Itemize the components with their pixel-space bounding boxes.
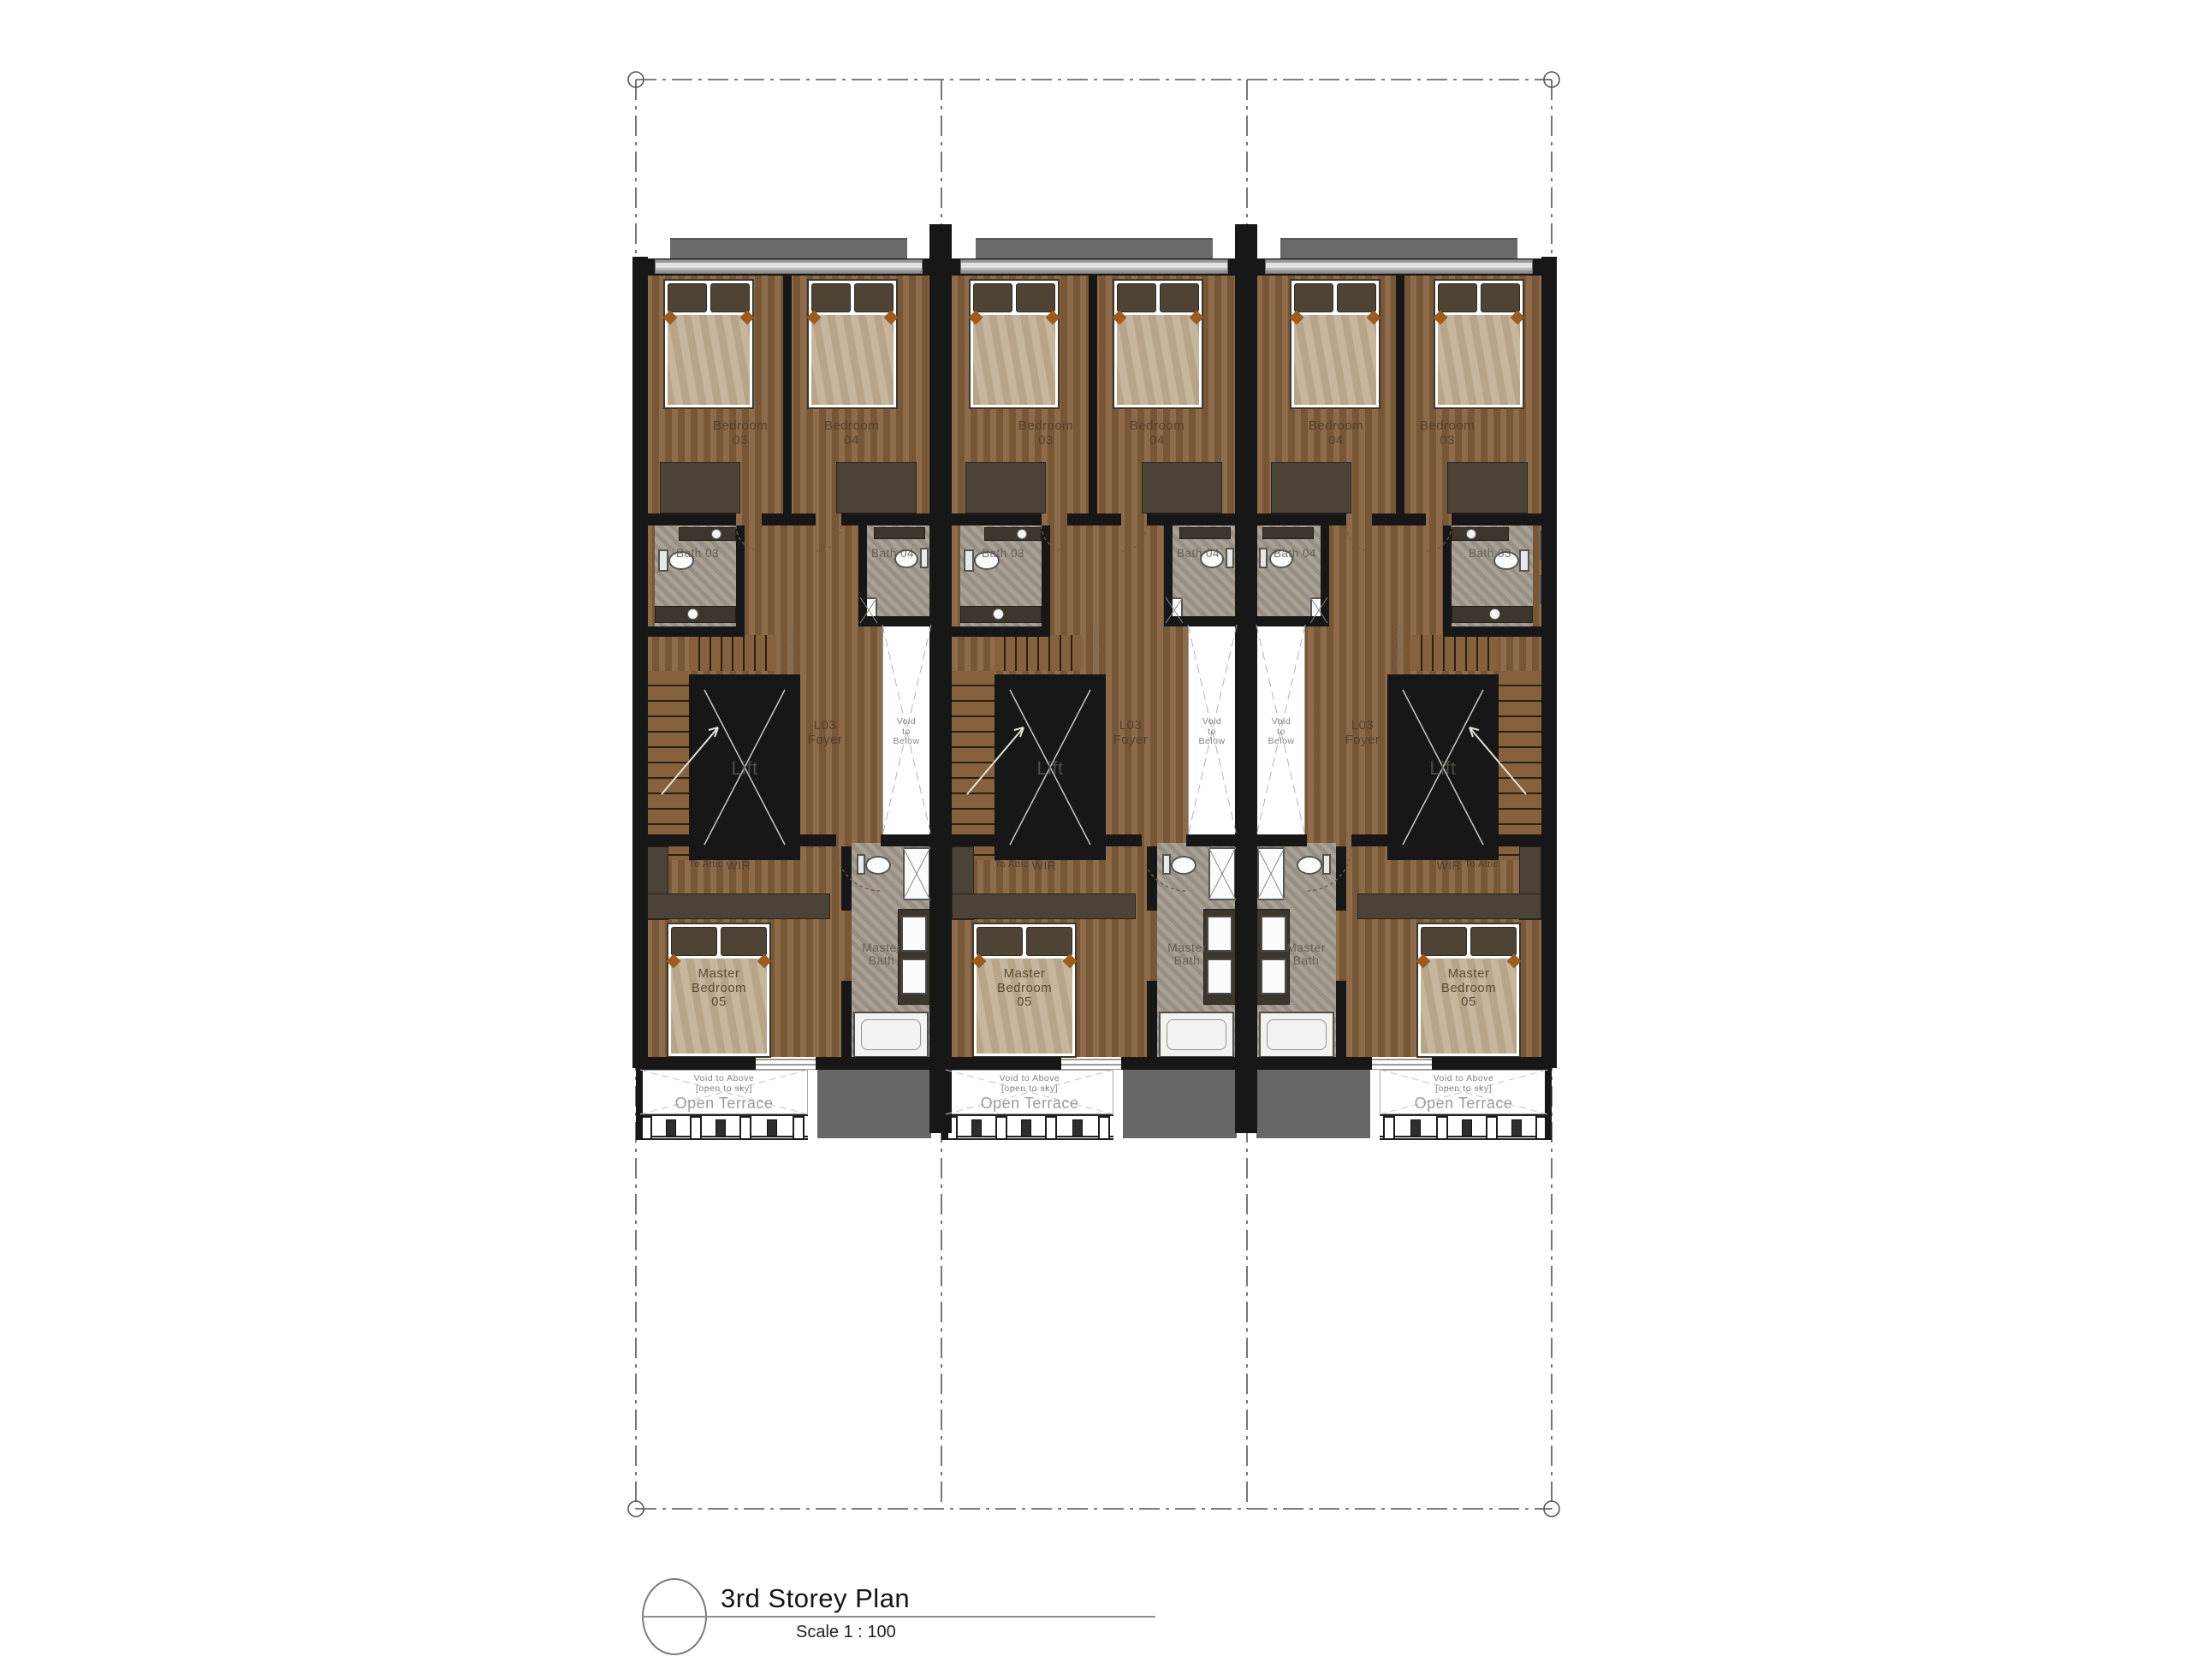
planter-box [767, 1119, 777, 1137]
terrace-door [1372, 1059, 1432, 1070]
railing-post [739, 1116, 751, 1140]
basin-round [993, 608, 1004, 620]
wir-label: WIR [727, 859, 751, 872]
void-below-label-line: Void [1198, 717, 1225, 727]
bath-03-label: Bath 03 [982, 548, 1024, 561]
stair-flight [995, 635, 1082, 671]
toilet [1519, 549, 1529, 572]
bed-pillows [977, 927, 1072, 956]
bedroom-03-label-line: Bedroom [713, 419, 768, 434]
wir-wardrobe [952, 893, 1136, 919]
toilet [1322, 854, 1331, 875]
void-below-label: VoidtoBelow [1268, 717, 1294, 747]
stair-flight [1411, 635, 1499, 671]
basin [1207, 916, 1232, 952]
exterior-wall-bottom [643, 1057, 756, 1070]
terrace-railing [640, 1114, 808, 1140]
void-below-label-line: Below [1268, 737, 1294, 747]
foyer-label: L03Foyer [1345, 719, 1381, 747]
vanity-counter [1179, 527, 1231, 539]
void-below-label: VoidtoBelow [1198, 717, 1225, 747]
bed-mattress [1438, 315, 1520, 405]
boundary-corner-marker [1544, 72, 1559, 87]
void-below-label-line: Below [893, 737, 919, 747]
basin [1261, 916, 1286, 952]
bath-wall [952, 626, 1050, 637]
terrace-sky-note: [open to sky] [696, 1084, 752, 1095]
master-bath-label-line: Master [1286, 941, 1326, 954]
bedroom-03-label: Bedroom03 [713, 419, 768, 448]
open-terrace-label: Open Terrace [981, 1095, 1079, 1113]
master-bath-wall [1336, 846, 1346, 911]
bedroom-bath-wall [762, 513, 816, 525]
awning-canopy [1280, 238, 1517, 260]
foyer-label: L03Foyer [1113, 719, 1149, 747]
master-bedroom-label-line: Bedroom [692, 982, 746, 996]
terrace-void-note: Void to Above [694, 1074, 755, 1084]
master-bath-wall [1336, 981, 1346, 1061]
master-bedroom-label-line: Bedroom [997, 982, 1052, 996]
toilet [1297, 856, 1322, 875]
basin [1261, 959, 1286, 994]
master-bath-wall [1147, 846, 1157, 911]
planter-box [666, 1119, 676, 1137]
boundary-corner-marker [628, 72, 644, 87]
bed-mattress [811, 315, 894, 405]
bedroom-04-label-line: 04 [1309, 434, 1363, 448]
wir-wardrobe [1357, 893, 1541, 919]
railing-post [1486, 1116, 1498, 1140]
bedroom-04-label-line: Bedroom [1130, 419, 1185, 434]
master-bath-wall [841, 846, 852, 911]
window-band [655, 259, 923, 274]
master-bedroom-label-line: 05 [1441, 995, 1496, 1010]
vanity-counter [1262, 527, 1314, 539]
master-bedroom-label-line: 05 [692, 995, 746, 1010]
bed-pillows [668, 283, 750, 312]
bedroom-04-label: Bedroom04 [1309, 419, 1363, 448]
master-wall [646, 834, 836, 846]
master-wall [952, 834, 1142, 846]
bed-pillows [1117, 283, 1199, 312]
master-wall [1351, 834, 1541, 846]
bedroom-03-label-line: 03 [1018, 434, 1073, 448]
bedroom-bath-wall [1067, 513, 1121, 525]
bedroom-03-label: Bedroom03 [1018, 419, 1073, 448]
toilet [857, 854, 865, 875]
master-bedroom-label: MasterBedroom05 [692, 967, 746, 1010]
basin [901, 916, 927, 952]
master-wall [1256, 834, 1307, 846]
foyer-label-line: Foyer [808, 733, 843, 748]
bedroom-04-label-line: Bedroom [1309, 419, 1363, 434]
railing-post [1383, 1116, 1395, 1140]
railing-post [793, 1116, 805, 1140]
railing-post [1098, 1116, 1110, 1140]
boundary-corner-marker [628, 1501, 644, 1517]
bathtub [1159, 1012, 1234, 1058]
bedroom-bath-wall [841, 513, 931, 525]
terrace-sky-note: [open to sky] [1435, 1084, 1492, 1095]
terrace-door [756, 1059, 816, 1070]
roof-slab-below [1123, 1063, 1237, 1138]
void-below-label: VoidtoBelow [893, 717, 919, 747]
bedroom-bath-wall [1256, 513, 1346, 525]
drawing-scale: Scale 1 : 100 [796, 1623, 896, 1642]
master-bedroom-label-line: 05 [997, 995, 1052, 1010]
stair-flight [689, 635, 776, 671]
foyer-label-line: L03 [1113, 719, 1149, 733]
from-below-label: From Below [1091, 625, 1100, 670]
planter-box [971, 1119, 982, 1137]
planter-box [715, 1119, 726, 1137]
dresser [965, 462, 1046, 513]
railing-post [1436, 1116, 1448, 1140]
bed-double [807, 279, 898, 409]
toilet [964, 549, 974, 572]
bed-double [969, 279, 1060, 409]
terrace-side-wall [1545, 1061, 1552, 1140]
bed-mattress [1294, 315, 1376, 405]
lift-label: Lift [1036, 758, 1063, 779]
bed-mattress [668, 315, 750, 405]
bathtub [1259, 1012, 1334, 1058]
master-bath-label: MasterBath [1167, 941, 1207, 968]
master-bedroom-label-line: Master [692, 967, 746, 982]
terrace-door [1061, 1059, 1121, 1070]
stair-flight [646, 671, 689, 860]
wir-label: WIR [1437, 859, 1462, 872]
shower [1257, 847, 1285, 900]
master-bedroom-label: MasterBedroom05 [997, 967, 1052, 1010]
bath-wall [1443, 626, 1541, 637]
lift-label: Lift [1429, 758, 1456, 779]
railing-post [995, 1116, 1007, 1140]
dresser [660, 462, 740, 513]
from-below-label: From Below [1393, 625, 1402, 670]
floor-plan-sheet: Bedroom03Bedroom04Bath 03Bath 04LiftL03F… [0, 0, 2191, 1680]
master-bath-label-line: Bath [862, 954, 901, 967]
basin-round [1466, 529, 1476, 539]
vanity-counter [679, 527, 736, 541]
foyer-label-line: Foyer [1345, 733, 1381, 748]
party-wall [1235, 224, 1257, 1133]
vanity-counter [874, 527, 925, 539]
window-band [1265, 259, 1533, 274]
planter-box [1462, 1119, 1472, 1137]
bed-double [1434, 279, 1524, 409]
roof-slab-below [817, 1063, 931, 1138]
terrace-railing [946, 1114, 1113, 1140]
drawing-title: 3rd Storey Plan [721, 1583, 910, 1614]
bed-pillows [811, 283, 894, 312]
bath-04-label: Bath 04 [1274, 548, 1316, 561]
bath-wall [1164, 525, 1173, 623]
bath-wall [1443, 525, 1452, 633]
bedroom-bath-wall [1147, 513, 1237, 525]
exterior-wall-bottom [1121, 1057, 1237, 1070]
master-bath-label: MasterBath [1286, 941, 1326, 968]
lift-label: Lift [731, 758, 757, 779]
bed-pillows [1294, 283, 1376, 312]
planter-box [1511, 1119, 1522, 1137]
basin [1207, 959, 1232, 994]
terrace-side-wall [636, 1061, 643, 1140]
dresser [1271, 462, 1351, 513]
master-wall [881, 834, 931, 846]
toilet [1226, 548, 1234, 568]
party-wall [929, 224, 952, 1133]
master-bedroom-label-line: Master [1441, 967, 1496, 982]
basin-round [1017, 529, 1027, 539]
bath-wall [1042, 525, 1050, 633]
toilet [1162, 854, 1171, 875]
bath-03-label: Bath 03 [676, 548, 719, 561]
to-attic-label: To Attic [995, 859, 1028, 870]
bedroom-bath-wall [952, 513, 1042, 525]
exterior-wall-bottom [1256, 1057, 1372, 1070]
planter-box [1021, 1119, 1031, 1137]
from-below-label: From Below [786, 625, 794, 670]
void-below-label-line: Void [1268, 717, 1294, 727]
master-bath-label-line: Master [1167, 941, 1207, 954]
stair-flight [952, 671, 995, 860]
toilet [1171, 856, 1196, 875]
stair-flight [1499, 671, 1541, 860]
bath-wall [858, 616, 931, 626]
bath-wall [1164, 616, 1237, 626]
title-underline [642, 1616, 1155, 1618]
bed-pillows [1438, 283, 1520, 312]
shower [903, 847, 930, 900]
exterior-wall-left [632, 257, 648, 1068]
window-band [960, 259, 1228, 274]
bed-double [1113, 279, 1203, 409]
master-bath-wall [841, 981, 852, 1061]
bedroom-03-label-line: 03 [1420, 434, 1475, 448]
foyer-label-line: L03 [808, 719, 843, 733]
open-terrace-label: Open Terrace [1415, 1095, 1513, 1113]
awning-canopy [670, 238, 907, 260]
toilet [920, 548, 929, 568]
bed-mattress [1117, 315, 1199, 405]
basin-round [711, 529, 721, 539]
bedroom-04-label-line: 04 [824, 434, 879, 448]
vanity-counter [1452, 527, 1509, 541]
foyer-label: L03Foyer [808, 719, 843, 747]
bedroom-divider-wall [783, 276, 792, 525]
bath-04-label: Bath 04 [1177, 548, 1220, 561]
bath-wall [646, 626, 745, 637]
exterior-wall-bottom [948, 1057, 1061, 1070]
master-bath-label-line: Master [862, 941, 901, 954]
toilet [658, 549, 668, 572]
terrace-side-wall [941, 1061, 948, 1140]
toilet [865, 856, 891, 875]
bath-wall [736, 525, 745, 633]
bed-pillows [1421, 927, 1517, 956]
bedroom-04-label-line: Bedroom [824, 419, 879, 434]
railing-post [690, 1116, 702, 1140]
shower [1208, 847, 1236, 900]
terrace-sky-note: [open to sky] [1001, 1084, 1058, 1095]
master-bedroom-label-line: Master [997, 967, 1052, 982]
open-terrace-label: Open Terrace [675, 1095, 774, 1113]
master-bath-wall [1147, 981, 1157, 1061]
roof-slab-below [1256, 1063, 1370, 1138]
bedroom-04-label: Bedroom04 [824, 419, 879, 448]
bedroom-04-label: Bedroom04 [1130, 419, 1185, 448]
awning-canopy [976, 238, 1213, 260]
planter-box [1072, 1119, 1083, 1137]
master-bath-label-line: Bath [1286, 954, 1326, 967]
bath-03-label: Bath 03 [1469, 548, 1511, 561]
bed-double [1290, 279, 1381, 409]
wir-wardrobe [646, 893, 830, 919]
to-attic-label: To Attic [1464, 859, 1498, 870]
void-below-label-line: Below [1198, 737, 1225, 747]
bedroom-bath-wall [1452, 513, 1541, 525]
boundary-corner-marker [1544, 1501, 1559, 1517]
exterior-wall-right [1541, 257, 1557, 1068]
bedroom-03-label-line: Bedroom [1420, 419, 1475, 434]
master-bedroom-label-line: Bedroom [1441, 982, 1496, 996]
dresser [1447, 462, 1528, 513]
wir-label: WIR [1032, 859, 1057, 872]
bath-wall [1256, 616, 1329, 626]
bedroom-03-label-line: 03 [713, 434, 768, 448]
master-bath-label: MasterBath [862, 941, 901, 968]
bedroom-bath-wall [1372, 513, 1426, 525]
to-attic-label: To Attic [689, 859, 722, 870]
bed-double [663, 279, 754, 409]
bedroom-03-label: Bedroom03 [1420, 419, 1475, 448]
master-bath-label-line: Bath [1167, 954, 1207, 967]
foyer-label-line: Foyer [1113, 733, 1149, 748]
master-bedroom-label: MasterBedroom05 [1441, 967, 1496, 1010]
basin [901, 959, 927, 994]
terrace-void-note: Void to Above [1434, 1074, 1494, 1084]
vanity-counter [984, 527, 1042, 541]
bed-mattress [973, 315, 1055, 405]
bed-pillows [973, 283, 1055, 312]
railing-post [1045, 1116, 1057, 1140]
dresser [1142, 462, 1222, 513]
bathtub [853, 1012, 929, 1058]
bath-04-label: Bath 04 [871, 548, 914, 561]
exterior-wall-bottom [816, 1057, 931, 1070]
void-below-label-line: Void [893, 717, 919, 727]
toilet [1259, 548, 1268, 568]
bedroom-04-label-line: 04 [1130, 434, 1185, 448]
planter-box [1410, 1119, 1421, 1137]
basin-round [1489, 608, 1500, 620]
bed-pillows [671, 927, 767, 956]
exterior-wall-bottom [1432, 1057, 1545, 1070]
terrace-void-note: Void to Above [1000, 1074, 1060, 1084]
bedroom-divider-wall [1396, 276, 1404, 525]
bedroom-divider-wall [1089, 276, 1097, 525]
bedroom-03-label-line: Bedroom [1018, 419, 1073, 434]
bath-wall [858, 525, 867, 623]
foyer-label-line: L03 [1345, 719, 1381, 733]
basin-round [687, 608, 698, 620]
dresser [836, 462, 917, 513]
terrace-railing [1380, 1114, 1547, 1140]
master-wall [1186, 834, 1237, 846]
bath-wall [1321, 525, 1329, 623]
bedroom-bath-wall [646, 513, 736, 525]
